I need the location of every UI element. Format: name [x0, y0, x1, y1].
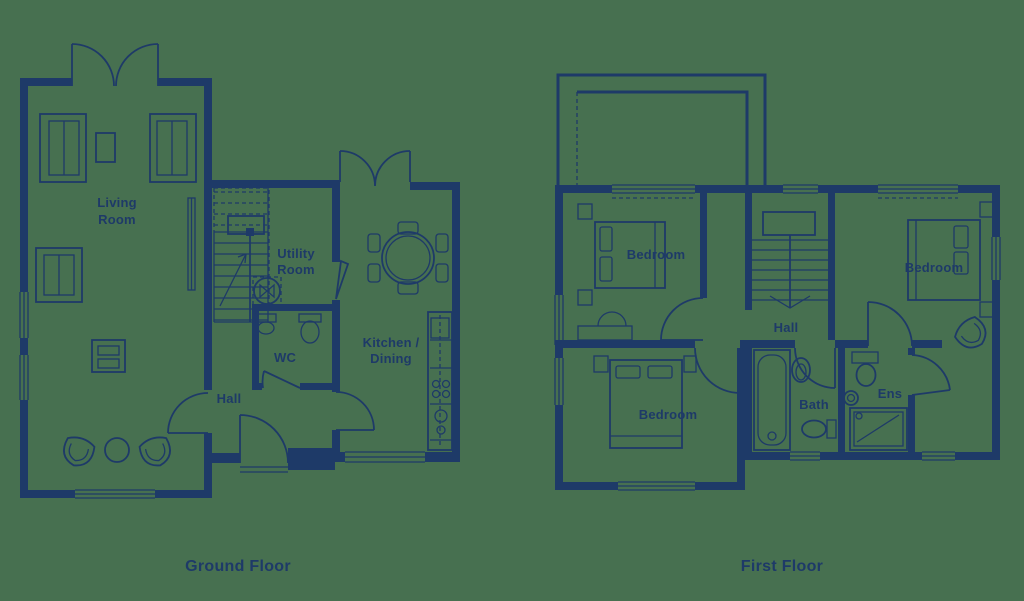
sofa-left-lower [36, 248, 82, 302]
hob-icon [433, 381, 450, 398]
hall-label-ground: Hall [217, 391, 242, 406]
wc-label: WC [274, 350, 296, 365]
living-room-window-left-lower [20, 355, 28, 400]
utility-door [336, 261, 348, 299]
first-floor-plan: Bedroom Bedroom Bedroom Hall Bath Ens Fi… [555, 75, 1000, 575]
bath-label: Bath [799, 397, 829, 412]
washing-machine-icon [253, 277, 281, 305]
armchair-right-icon [138, 434, 175, 470]
utility-room-label-line1: Utility [277, 246, 315, 261]
french-doors-living-room [72, 44, 158, 86]
armchair-bedroom-right-icon [952, 314, 993, 355]
ensuite-door [912, 355, 950, 395]
front-door [240, 415, 288, 472]
bedroom-top-left-label: Bedroom [627, 247, 685, 262]
side-table-icon [105, 438, 129, 462]
kitchen-counter [428, 312, 452, 450]
ensuite-toilet-icon [852, 352, 878, 386]
living-room-door [168, 393, 208, 433]
bathtub-icon [754, 350, 790, 450]
shower-icon [850, 408, 907, 450]
living-room-radiator [188, 198, 195, 290]
bed-bottom-left-icon [594, 356, 696, 448]
bedroom-right-label: Bedroom [905, 260, 963, 275]
bedroom-bottom-left-label: Bedroom [639, 407, 697, 422]
floor-plan-canvas: Living Room Utility Room WC Hall Kitchen… [0, 0, 1024, 601]
bath-toilet-icon [802, 420, 836, 438]
ground-floor-plan: Living Room Utility Room WC Hall Kitchen… [20, 44, 460, 575]
bedroom-top-left-door [661, 298, 703, 340]
dining-table-icon [368, 222, 448, 294]
living-room-label-line2: Room [98, 212, 136, 227]
bedroom-bottom-left-door [695, 348, 740, 393]
ground-floor-title: Ground Floor [185, 558, 291, 575]
kitchen-dining-label-line2: Dining [370, 351, 412, 366]
wc-toilet-icon [299, 314, 321, 343]
bedroom-right-door [868, 302, 912, 346]
french-doors-kitchen [340, 151, 410, 186]
living-room-window-bottom [75, 490, 155, 498]
coffee-table-icon [96, 133, 115, 162]
kitchen-window-bottom [345, 452, 425, 462]
living-room-window-left-upper [20, 292, 28, 338]
kitchen-door [336, 392, 374, 430]
utility-room-label-line2: Room [277, 262, 315, 277]
sofa-top-right [150, 114, 196, 182]
living-room-label-line1: Living [97, 195, 136, 210]
sink-icon [435, 410, 447, 434]
first-floor-title: First Floor [741, 558, 823, 575]
sofa-top-left [40, 114, 86, 182]
oven-icon [431, 318, 449, 338]
wardrobe-top-left [578, 312, 632, 340]
armchair-left-icon [60, 434, 97, 470]
ensuite-label: Ens [878, 386, 902, 401]
wc-door [263, 371, 300, 388]
first-floor-stairs [752, 212, 828, 308]
roof-outline [558, 75, 765, 186]
hall-label-first: Hall [774, 320, 799, 335]
sideboard-icon [92, 340, 125, 372]
kitchen-dining-label-line1: Kitchen / [363, 335, 420, 350]
ensuite-basin-icon [844, 391, 858, 405]
